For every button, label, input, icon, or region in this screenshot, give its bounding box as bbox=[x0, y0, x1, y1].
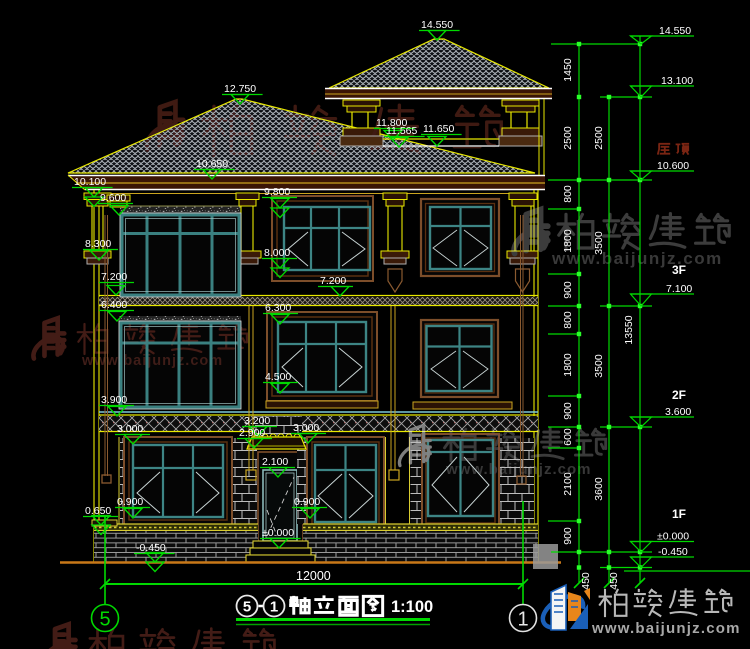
svg-text:1F: 1F bbox=[672, 507, 686, 521]
svg-text:www.baijunjz.com: www.baijunjz.com bbox=[591, 620, 741, 637]
svg-text:6.300: 6.300 bbox=[265, 302, 291, 314]
svg-text:3500: 3500 bbox=[593, 354, 605, 378]
svg-text:3.000: 3.000 bbox=[293, 422, 319, 434]
svg-text:10.650: 10.650 bbox=[196, 158, 228, 170]
svg-text:2F: 2F bbox=[672, 388, 686, 402]
svg-text:2500: 2500 bbox=[593, 126, 605, 150]
svg-text:2100: 2100 bbox=[562, 472, 574, 496]
svg-text:0.900: 0.900 bbox=[294, 496, 320, 508]
svg-text:3.600: 3.600 bbox=[665, 406, 691, 418]
svg-text:www.baijunjz.com: www.baijunjz.com bbox=[81, 353, 223, 369]
svg-text:2.900: 2.900 bbox=[239, 427, 265, 439]
svg-text:900: 900 bbox=[562, 527, 574, 545]
svg-text:1: 1 bbox=[270, 599, 278, 616]
svg-text:3F: 3F bbox=[672, 263, 686, 277]
svg-text:3.000: 3.000 bbox=[117, 423, 143, 435]
svg-text:1450: 1450 bbox=[562, 58, 574, 82]
svg-text:10.100: 10.100 bbox=[74, 176, 106, 188]
svg-text:800: 800 bbox=[562, 185, 574, 203]
svg-text:4.500: 4.500 bbox=[265, 371, 291, 383]
svg-text:450: 450 bbox=[608, 572, 620, 590]
svg-text:12.750: 12.750 bbox=[224, 83, 256, 95]
svg-text:3500: 3500 bbox=[593, 231, 605, 255]
svg-text:600: 600 bbox=[562, 428, 574, 446]
svg-text:5: 5 bbox=[99, 609, 110, 631]
svg-text:www.baijunjz.com: www.baijunjz.com bbox=[551, 249, 723, 268]
svg-text:1800: 1800 bbox=[562, 229, 574, 253]
svg-text:2500: 2500 bbox=[562, 126, 574, 150]
svg-text:7.200: 7.200 bbox=[101, 271, 127, 283]
svg-text:13550: 13550 bbox=[623, 315, 635, 344]
svg-text:8.000: 8.000 bbox=[264, 247, 290, 259]
svg-text:1:100: 1:100 bbox=[391, 598, 433, 616]
svg-text:13.100: 13.100 bbox=[661, 75, 693, 87]
svg-text:7.200: 7.200 bbox=[320, 275, 346, 287]
svg-text:±0.000: ±0.000 bbox=[262, 527, 294, 539]
svg-text:±0.000: ±0.000 bbox=[657, 531, 689, 543]
svg-text:14.550: 14.550 bbox=[421, 19, 453, 31]
svg-text:7.100: 7.100 bbox=[666, 283, 692, 295]
svg-text:2.100: 2.100 bbox=[262, 456, 288, 468]
svg-text:10.600: 10.600 bbox=[657, 160, 689, 172]
svg-text:3.200: 3.200 bbox=[244, 415, 270, 427]
svg-text:-0.450: -0.450 bbox=[658, 546, 688, 558]
svg-text:1800: 1800 bbox=[562, 353, 574, 377]
svg-text:3600: 3600 bbox=[593, 477, 605, 501]
svg-text:8.300: 8.300 bbox=[85, 238, 111, 250]
svg-text:9.600: 9.600 bbox=[100, 192, 126, 204]
svg-text:6.400: 6.400 bbox=[101, 299, 127, 311]
svg-text:900: 900 bbox=[562, 402, 574, 420]
svg-text:5: 5 bbox=[243, 599, 251, 616]
svg-text:12000: 12000 bbox=[296, 569, 331, 583]
svg-text:11.565: 11.565 bbox=[386, 125, 417, 137]
svg-text:1: 1 bbox=[517, 609, 528, 631]
svg-text:9.800: 9.800 bbox=[264, 186, 290, 198]
svg-text:3.900: 3.900 bbox=[101, 394, 127, 406]
svg-text:900: 900 bbox=[562, 281, 574, 299]
svg-text:0.900: 0.900 bbox=[117, 496, 143, 508]
svg-text:450: 450 bbox=[580, 572, 592, 590]
svg-text:800: 800 bbox=[562, 311, 574, 329]
svg-text:11.650: 11.650 bbox=[423, 123, 454, 135]
svg-text:14.550: 14.550 bbox=[659, 25, 691, 37]
